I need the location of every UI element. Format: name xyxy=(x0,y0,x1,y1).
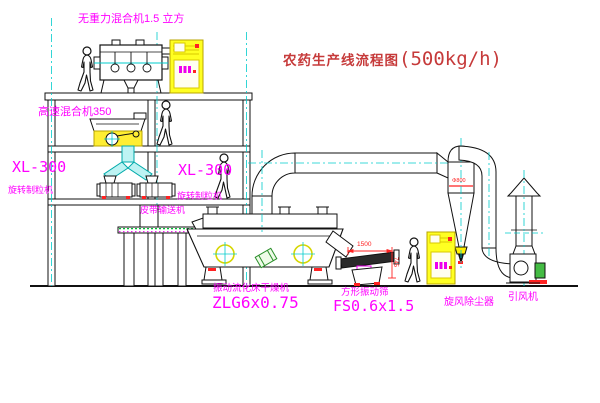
granulator-left xyxy=(97,176,135,199)
person-figure xyxy=(78,47,93,91)
label-belt-conveyor: 皮带输送机 xyxy=(140,206,185,215)
dim-screen-height: 745 xyxy=(392,257,398,267)
label-granulator-model-right: XL-300 xyxy=(178,163,232,178)
label-granulator-name-left: 旋转制粒机 xyxy=(8,186,53,195)
person-figure xyxy=(157,101,172,145)
title-capacity: (500kg/h) xyxy=(399,48,502,70)
person-figure xyxy=(405,238,420,282)
label-cyclone: 旋风除尘器 xyxy=(444,298,494,308)
label-gravity-mixer: 无重力混合机1.5 立方 xyxy=(78,14,184,25)
label-granulator-model-left: XL-300 xyxy=(12,160,66,175)
label-high-speed-mixer: 高速混合机350 xyxy=(38,107,111,118)
fluid-bed-dryer xyxy=(187,207,353,284)
page-title: 农药生产线流程图(500kg/h) xyxy=(283,48,502,70)
label-fan: 引风机 xyxy=(508,293,538,303)
induced-draft-fan xyxy=(506,254,547,284)
control-cabinet-2 xyxy=(427,232,455,284)
title-text: 农药生产线流程图 xyxy=(283,53,399,68)
label-dryer-model: ZLG6x0.75 xyxy=(212,295,299,311)
dim-cyclone: Φ800 xyxy=(452,179,466,185)
granulator-right xyxy=(137,176,175,199)
control-cabinet-1 xyxy=(170,40,203,93)
label-granulator-name-right: 旋转制粒机 xyxy=(177,192,222,201)
label-screen-model: FS0.6x1.5 xyxy=(333,299,414,314)
high-speed-mixer xyxy=(90,113,146,147)
flow-diagram-page: 农药生产线流程图(500kg/h) 无重力混合机1.5 立方 高速混合机350 … xyxy=(0,0,600,403)
dim-screen-length: 1500 xyxy=(357,242,371,249)
gravity-free-mixer xyxy=(94,40,174,93)
